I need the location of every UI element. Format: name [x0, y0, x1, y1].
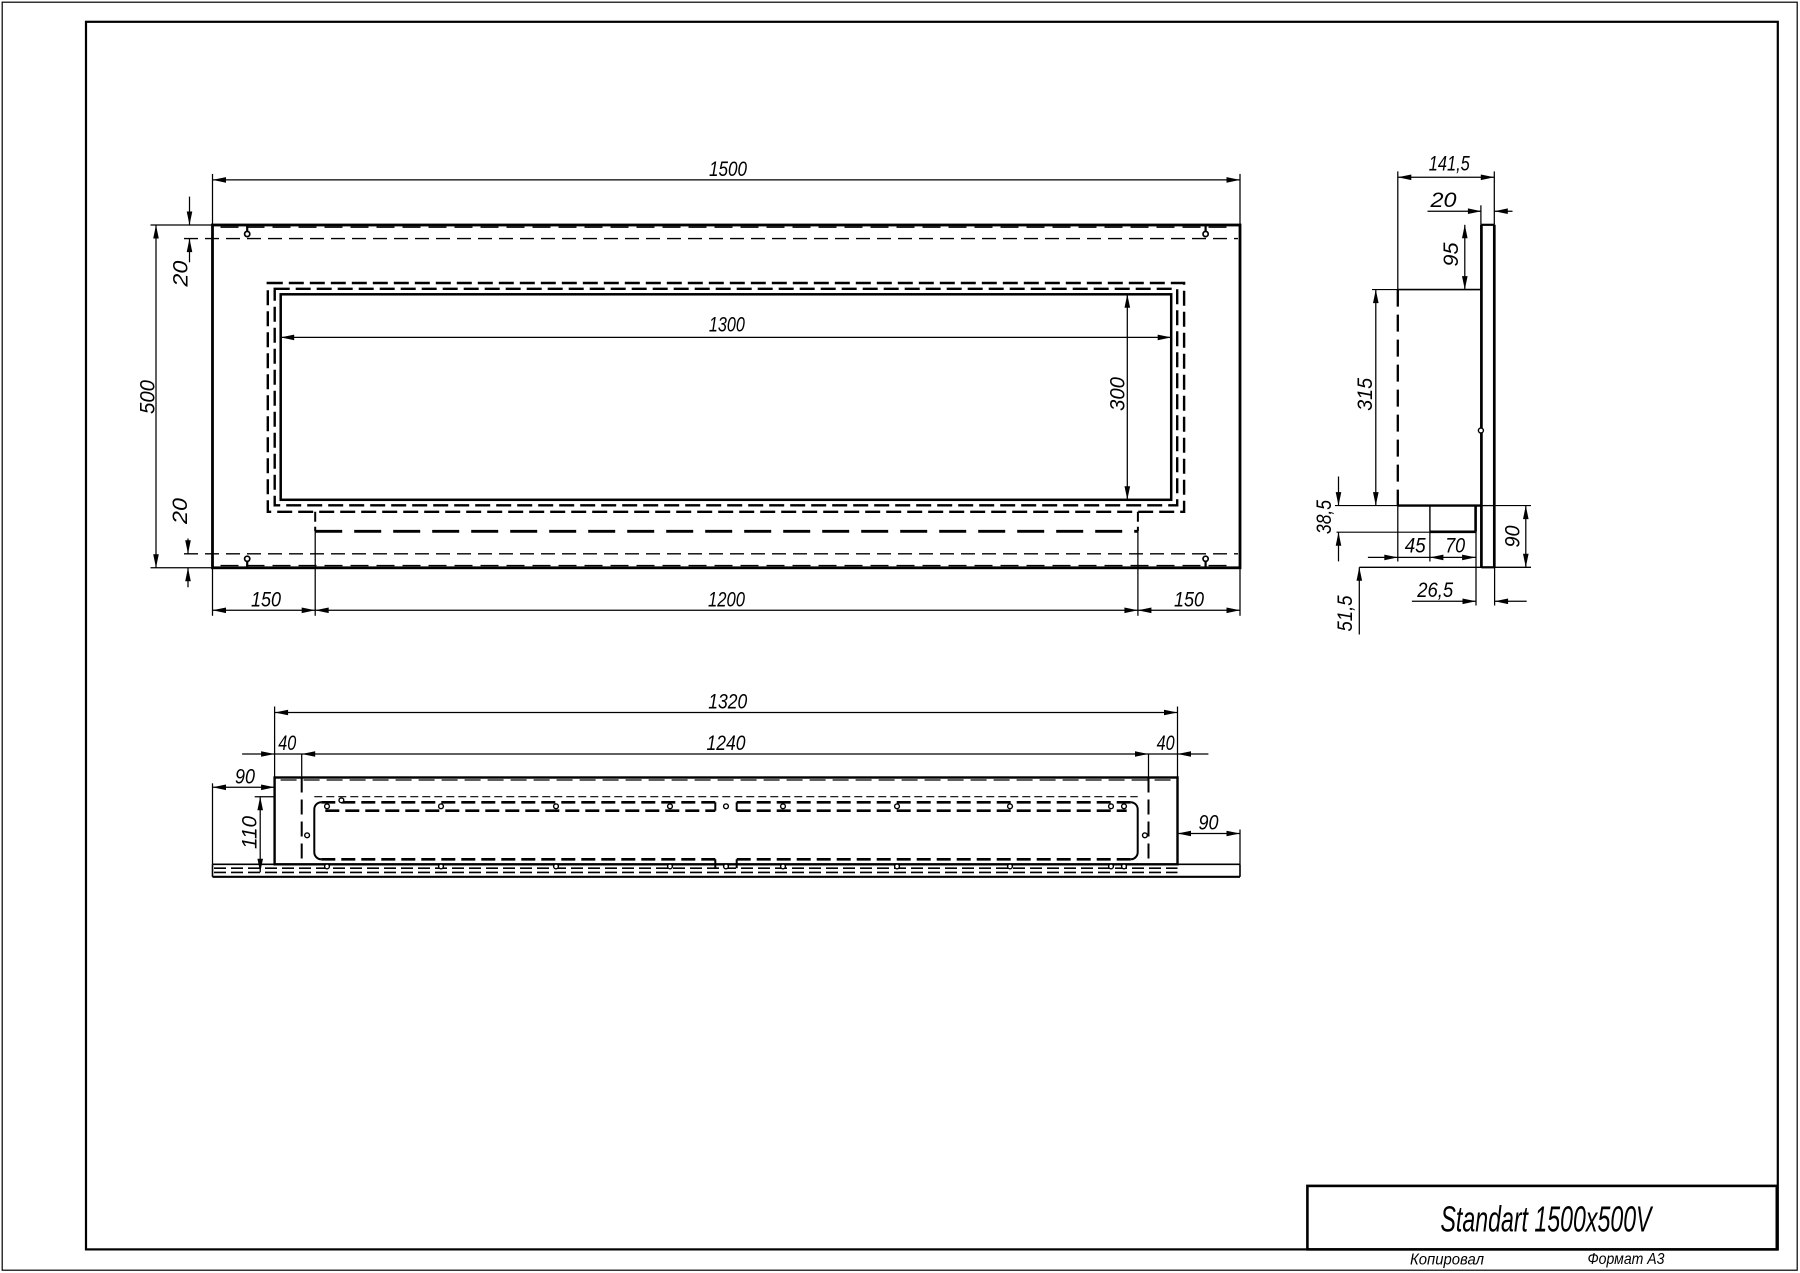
- svg-text:110: 110: [238, 816, 262, 849]
- svg-text:315: 315: [1353, 377, 1377, 411]
- svg-text:Копировал: Копировал: [1410, 1252, 1484, 1269]
- svg-text:500: 500: [136, 380, 160, 414]
- svg-text:95: 95: [1439, 241, 1463, 266]
- svg-text:150: 150: [251, 588, 281, 612]
- svg-text:26,5: 26,5: [1416, 578, 1454, 602]
- svg-text:1500: 1500: [709, 157, 747, 181]
- svg-text:Формат А3: Формат А3: [1588, 1251, 1665, 1268]
- svg-text:Standart 1500x500V: Standart 1500x500V: [1441, 1199, 1654, 1240]
- svg-text:300: 300: [1105, 377, 1129, 411]
- svg-text:1200: 1200: [708, 588, 745, 612]
- svg-text:150: 150: [1174, 588, 1204, 612]
- svg-text:1240: 1240: [707, 731, 746, 755]
- svg-text:20: 20: [1429, 188, 1456, 212]
- svg-text:141,5: 141,5: [1429, 152, 1471, 176]
- svg-text:90: 90: [1501, 525, 1525, 547]
- svg-text:40: 40: [278, 731, 296, 755]
- svg-text:51,5: 51,5: [1333, 595, 1357, 632]
- svg-text:38,5: 38,5: [1312, 499, 1336, 534]
- svg-text:90: 90: [235, 764, 255, 788]
- svg-text:45: 45: [1405, 534, 1427, 558]
- svg-text:70: 70: [1445, 534, 1465, 558]
- svg-text:40: 40: [1157, 731, 1175, 755]
- svg-text:90: 90: [1199, 811, 1219, 835]
- svg-text:1300: 1300: [709, 313, 745, 337]
- svg-text:20: 20: [168, 498, 192, 525]
- svg-text:20: 20: [168, 261, 192, 288]
- svg-text:1320: 1320: [708, 690, 747, 714]
